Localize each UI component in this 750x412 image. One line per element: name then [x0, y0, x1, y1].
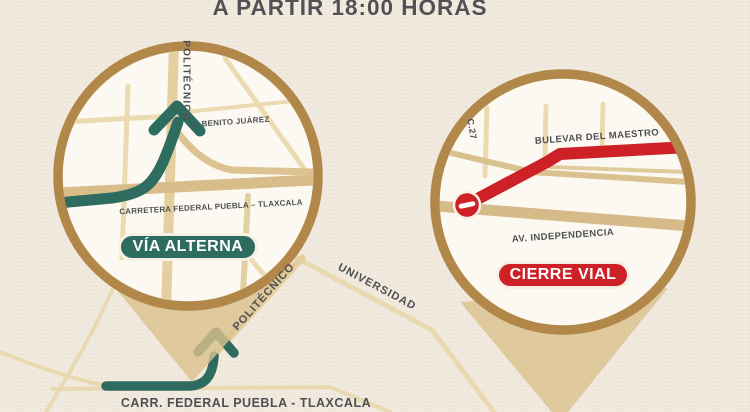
via-alterna-badge: VÍA ALTERNA	[118, 233, 258, 261]
c27-road	[485, 108, 487, 176]
road	[545, 106, 546, 158]
page-title: A PARTIR 18:00 HORAS	[212, 0, 487, 21]
road-closure-infographic: A PARTIR 18:00 HORAS POLITÉCNICO C. BENI…	[0, 0, 750, 412]
right-inset-circle	[435, 74, 691, 330]
road	[46, 290, 112, 412]
map-canvas	[0, 0, 750, 412]
road	[602, 104, 603, 152]
cierre-vial-badge: CIERRE VIAL	[496, 261, 630, 289]
base-map-label-carretera: CARR. FEDERAL PUEBLA - TLAXCALA	[121, 396, 371, 410]
cierre-vial-badge-label: CIERRE VIAL	[510, 266, 617, 284]
via-alterna-badge-label: VÍA ALTERNA	[133, 238, 244, 256]
left-inset-label-politecnico: POLITÉCNICO	[181, 40, 192, 122]
